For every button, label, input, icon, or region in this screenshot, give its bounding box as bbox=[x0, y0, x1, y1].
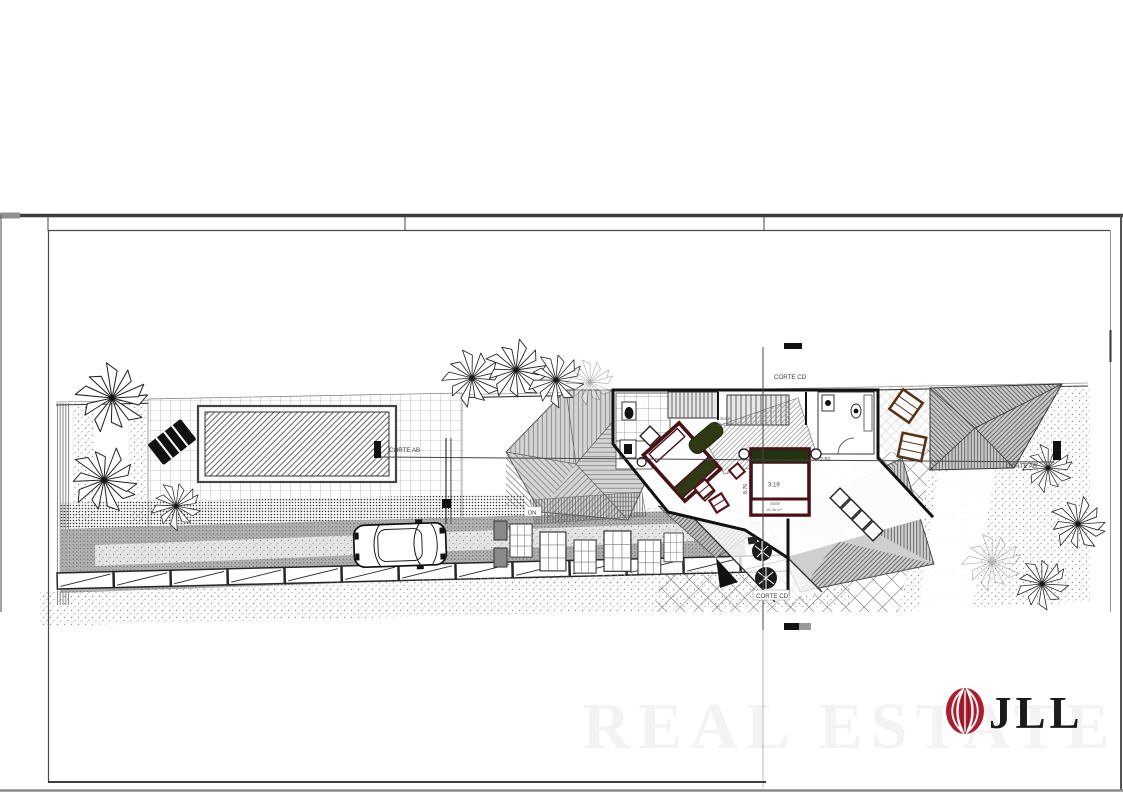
corte-ab-left-label: CORTE AB bbox=[389, 447, 420, 454]
suite-second-name: Suite bbox=[770, 501, 781, 506]
dim-vertical: 8.76 bbox=[743, 484, 749, 494]
dn-label: DN bbox=[528, 511, 536, 517]
section-marker-cd-top bbox=[784, 343, 802, 349]
toilet bbox=[622, 402, 636, 420]
suite-main-name: Suite bbox=[720, 416, 731, 421]
site-plan-sheet: CORTE AB CORTE AB CORTE CD CORTE CD DN 3… bbox=[0, 0, 1123, 793]
corte-cd-top-label: CORTE CD bbox=[774, 374, 807, 381]
dim-room-right: 2.51 bbox=[820, 457, 831, 463]
jll-logo-text: JLL bbox=[989, 688, 1084, 738]
corte-cd-bottom-label: CORTE CD bbox=[756, 593, 789, 600]
pool-water bbox=[205, 412, 389, 476]
section-marker-cd-bottom bbox=[784, 623, 799, 630]
suite-main-area: 16.41 m² bbox=[717, 422, 734, 427]
jll-logo-mark bbox=[946, 688, 984, 734]
section-marker-ab-right bbox=[1053, 441, 1061, 460]
dim-bed-width: 3.19 bbox=[768, 483, 780, 489]
car bbox=[353, 518, 447, 571]
bathroom-right bbox=[818, 392, 874, 454]
suite-second-area: 16.36 m² bbox=[766, 507, 782, 512]
corte-ab-right-label: CORTE AB bbox=[1006, 463, 1037, 470]
section-marker-ab-left bbox=[374, 441, 381, 458]
jll-logo: JLL bbox=[946, 688, 1084, 738]
